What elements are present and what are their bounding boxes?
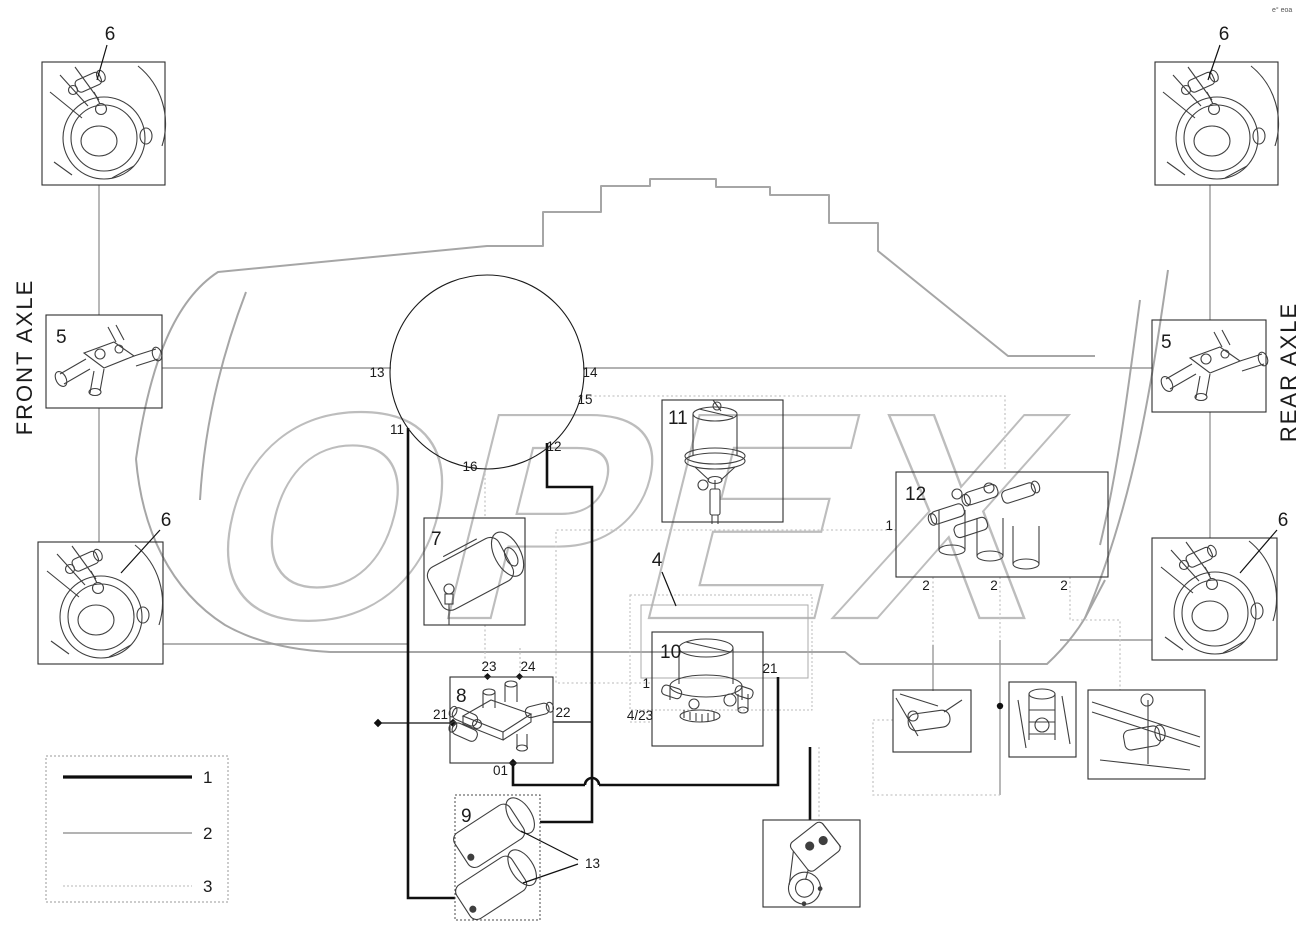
tanks-callout-13: 13 [585,856,600,871]
valve12-port-2c-label: 2 [1060,578,1068,593]
rear-axle-caption: REAR AXLE [1276,302,1301,442]
valve12-port-1-label: 1 [885,518,893,533]
hub-tl-label: 6 [105,24,116,45]
valve12-port-2b-label: 2 [990,578,998,593]
hub-bl-label: 6 [161,510,172,531]
hub-br-leader [1240,530,1277,573]
tanks-13-leaders [521,831,578,883]
diagram-canvas: OPEX [0,0,1315,939]
distribution-box-right: 5 [1152,320,1269,412]
hub-br-label: 6 [1278,510,1289,531]
hub-tr-label: 6 [1219,24,1230,45]
dryer-port-1-label: 1 [642,676,650,691]
foot-valve-box [763,820,860,911]
node-junction-dot [997,703,1003,709]
distribution-box-left: 5 [46,315,163,408]
line-12-label: 12 [546,439,561,454]
port-23-label: 23 [481,659,496,674]
port-21-label: 21 [433,707,448,722]
front-axle-caption: FRONT AXLE [12,279,37,436]
hub-box-top-left: 6 [42,24,165,185]
legend-label-3: 3 [203,877,212,896]
hub-box-bottom-right: 6 [1152,510,1288,660]
air-dryer-label: 10 [660,642,681,663]
twin-tanks-label: 9 [461,806,472,827]
dryer-port-21-label: 21 [762,661,777,676]
detail-box-a [893,690,971,752]
corner-note: e° eoa [1272,6,1292,14]
dryer-port-4-23-label: 4/23 [627,708,653,723]
legend-label-1: 1 [203,768,212,787]
line-15-label: 15 [577,392,592,407]
line-11-label: 11 [390,422,404,437]
hub-bl-leader [121,530,160,573]
tractor-rear-fender [1085,270,1168,618]
line-16-label: 16 [462,459,477,474]
valve12-port-2a-label: 2 [922,578,930,593]
compressor-label: 11 [668,408,688,429]
air-tank-label: 7 [431,529,442,550]
port-24-label: 24 [520,659,536,674]
detail-box-b [1009,682,1076,757]
dist-left-label: 5 [56,327,67,348]
protection-valve-label: 12 [905,484,926,505]
dist-right-label: 5 [1161,332,1172,353]
brake-system-diagram: OPEX [0,0,1315,939]
valve-block-label: 8 [456,686,467,707]
line-14-label: 14 [582,365,598,380]
port-22-label: 22 [555,705,570,720]
legend: 1 2 3 [46,756,228,902]
line-13-label: 13 [369,365,384,380]
valve-block-box-8: 8 23 24 21 22 01 [433,659,571,778]
hub-box-top-right: 6 [1155,24,1278,185]
line-lower-right-loop [873,720,1000,795]
port-01-label: 01 [493,763,508,778]
twin-tanks-box-9: 9 13 [451,793,600,923]
detail-box-c [1088,690,1205,779]
legend-label-2: 2 [203,824,212,843]
node-21-end [374,719,382,727]
dryer-assembly-label: 4 [652,550,663,571]
